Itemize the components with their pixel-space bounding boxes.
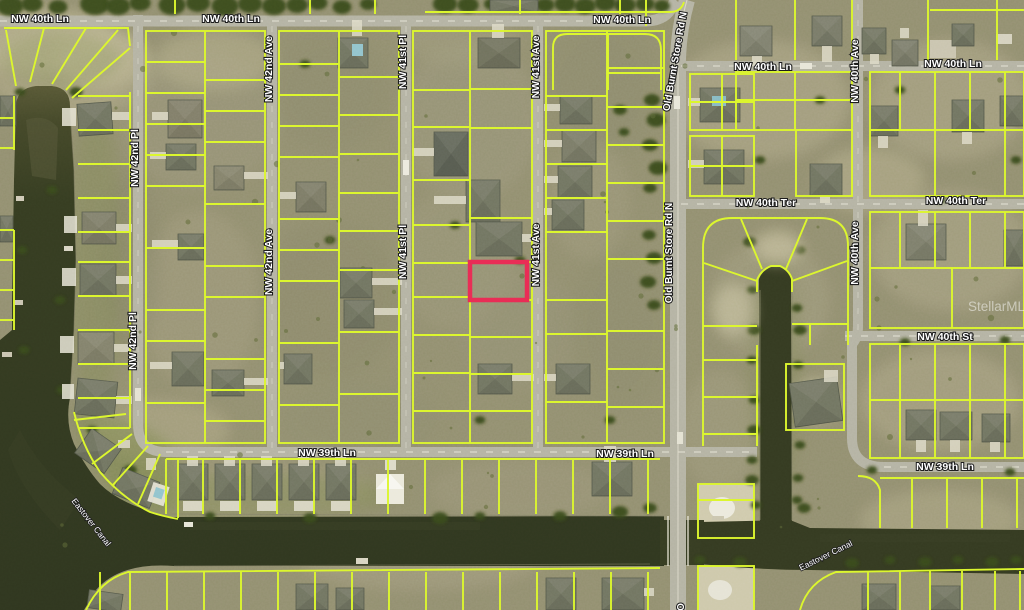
svg-text:NW 41st Ave: NW 41st Ave (530, 35, 542, 98)
svg-text:NW 39th Ln: NW 39th Ln (596, 448, 654, 460)
svg-text:NW 41st Ave: NW 41st Ave (530, 223, 542, 286)
svg-text:NW 42nd Ave: NW 42nd Ave (263, 229, 275, 295)
svg-text:StellarMLS: StellarMLS (968, 299, 1024, 314)
svg-text:NW 40th Ave: NW 40th Ave (849, 39, 861, 103)
svg-text:NW 40th Ln: NW 40th Ln (11, 13, 69, 25)
svg-text:NW 40th Ter: NW 40th Ter (926, 195, 986, 207)
svg-text:NW 39th Ln: NW 39th Ln (298, 447, 356, 459)
svg-text:NW 42nd Ave: NW 42nd Ave (263, 36, 275, 102)
svg-text:NW 42nd Pl: NW 42nd Pl (127, 312, 139, 370)
svg-text:NW 41st Pl: NW 41st Pl (397, 35, 409, 89)
svg-text:NW 40th Ave: NW 40th Ave (849, 221, 861, 285)
svg-text:NW 41st Pl: NW 41st Pl (397, 225, 409, 279)
svg-text:NW 40th Ter: NW 40th Ter (736, 197, 796, 209)
svg-text:NW 40th Ln: NW 40th Ln (734, 61, 792, 73)
svg-text:NW 42nd Pl: NW 42nd Pl (129, 129, 141, 187)
svg-text:NW 39th Ln: NW 39th Ln (916, 461, 974, 473)
svg-text:NW 40th Ln: NW 40th Ln (593, 14, 651, 26)
svg-text:O: O (676, 603, 687, 610)
svg-text:NW 40th St: NW 40th St (917, 331, 973, 343)
svg-text:NW 40th Ln: NW 40th Ln (924, 58, 982, 70)
svg-text:NW 40th Ln: NW 40th Ln (202, 13, 260, 25)
svg-text:Old Burnt Store Rd N: Old Burnt Store Rd N (664, 203, 675, 304)
